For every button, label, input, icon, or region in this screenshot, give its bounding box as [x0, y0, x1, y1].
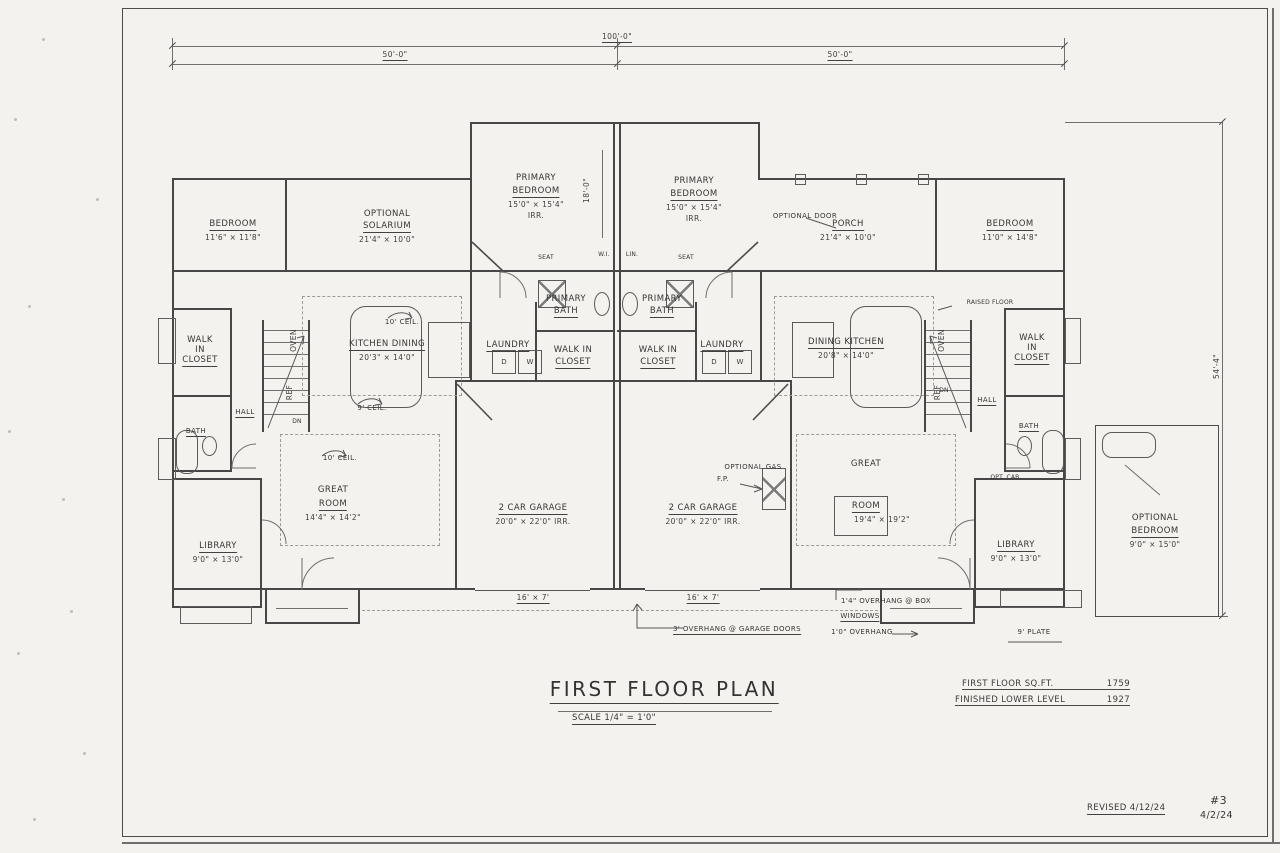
room-label-hall: HALL	[235, 408, 254, 416]
room-name: BEDROOM	[670, 189, 717, 201]
room-label-laundry: LAUNDRY	[486, 341, 529, 351]
sqft-line: FIRST FLOOR SQ.FT. 1759	[962, 679, 1130, 690]
room-name: LAUNDRY	[486, 340, 529, 352]
stair-dn-label: DN	[292, 419, 302, 426]
room-dims-irr: IRR.	[686, 215, 702, 224]
room-name: CLOSET	[555, 357, 590, 369]
room-dims: 9'0" × 15'0"	[1130, 541, 1181, 550]
room-dims-irr: IRR.	[528, 212, 544, 221]
room-name: LIBRARY	[997, 540, 1035, 552]
garage-door-dim: 16' × 7'	[687, 594, 720, 603]
raised-floor-note: RAISED FLOOR	[967, 300, 1014, 307]
room-label-bath: BATH	[186, 427, 206, 435]
revision-note: REVISED 4/12/24	[1087, 804, 1165, 814]
room-dims: 20'8" × 14'0"	[818, 352, 874, 361]
room-name: BATH	[650, 306, 674, 318]
room-label-solarium: OPTIONAL	[364, 210, 410, 220]
dim-text: 16' × 7'	[687, 593, 720, 604]
room-label-bedroom: BEDROOM	[209, 220, 256, 230]
room-label-library: LIBRARY	[997, 541, 1035, 551]
room-dims: 21'4" × 10'0"	[820, 234, 876, 243]
note-text: 3' OVERHANG @ GARAGE DOORS	[673, 625, 801, 635]
room-dims: 14'4" × 14'2"	[305, 514, 361, 523]
lower-label: FINISHED LOWER LEVEL	[955, 695, 1065, 705]
room-name: ROOM	[852, 501, 880, 513]
room-name: BEDROOM	[512, 186, 559, 198]
title-underline	[558, 711, 772, 712]
room-name: BEDROOM	[1131, 526, 1178, 538]
room-label-primary-bath: PRIMARY	[642, 295, 682, 305]
room-dims: 15'0" × 15'4"	[508, 201, 564, 210]
wi-closet-label: W.I.	[598, 252, 610, 259]
room-name: BEDROOM	[209, 219, 256, 231]
room-label-great-room: ROOM	[852, 502, 880, 512]
room-name: DINING KITCHEN	[808, 337, 884, 349]
gas-fp-note: F.P.	[717, 475, 729, 483]
ceiling-note: 10' CEIL.	[323, 454, 357, 462]
room-label-primary-bedroom: BEDROOM	[512, 187, 559, 197]
room-name: LIBRARY	[199, 541, 237, 553]
room-label-walkin-closet: CLOSET	[640, 358, 675, 368]
lower-value: 1927	[1107, 695, 1130, 705]
room-label-great-room: GREAT	[318, 486, 348, 496]
room-name: HALL	[977, 396, 996, 406]
opt-cab-note: OPT. CAB.	[990, 475, 1021, 482]
ceiling-note: 10' CEIL.	[385, 318, 419, 326]
room-label-primary-bath: PRIMARY	[546, 295, 586, 305]
garage-door-dim: 16' × 7'	[517, 594, 550, 603]
room-label-porch: PORCH	[832, 220, 864, 230]
room-label-solarium: SOLARIUM	[363, 222, 411, 232]
sqft-label: FIRST FLOOR SQ.FT.	[962, 679, 1054, 689]
room-label-garage: 2 CAR GARAGE	[499, 504, 568, 514]
drawing-scale: SCALE 1/4" = 1'0"	[572, 714, 656, 724]
revision-text: REVISED 4/12/24	[1087, 803, 1165, 815]
scale-text: SCALE 1/4" = 1'0"	[572, 713, 656, 725]
note-text: WINDOWS	[840, 612, 879, 622]
room-label-great-room: GREAT	[851, 460, 881, 470]
room-name: BATH	[186, 427, 206, 437]
dim-text: 16' × 7'	[517, 593, 550, 604]
ceiling-note: 9' CEIL.	[357, 404, 386, 412]
room-name: LAUNDRY	[700, 340, 743, 352]
room-dims: 21'4" × 10'0"	[359, 236, 415, 245]
oven-label: OVEN	[289, 329, 298, 352]
drawing-title: FIRST FLOOR PLAN	[550, 678, 779, 704]
room-dims: 20'0" × 22'0" IRR.	[665, 518, 740, 527]
seat-label: SEAT	[538, 255, 554, 262]
room-label-kitchen-dining: KITCHEN DINING	[349, 340, 425, 350]
seat-label: SEAT	[678, 255, 694, 262]
room-name: CLOSET	[182, 355, 217, 367]
room-name: BEDROOM	[986, 219, 1033, 231]
angled-walls	[457, 242, 788, 420]
oven-label: OVEN	[937, 329, 946, 352]
room-label-primary-bedroom: PRIMARY	[674, 177, 714, 187]
box-window-note: 1'0" OVERHANG	[831, 628, 893, 636]
room-dims: 20'3" × 14'0"	[359, 354, 415, 363]
sheet-date: 4/2/24	[1200, 811, 1233, 822]
room-label-walkin-closet: WALK IN	[639, 346, 677, 356]
sheet-number: #3	[1210, 795, 1227, 808]
room-name: CLOSET	[1014, 353, 1049, 365]
room-dims: 20'0" × 22'0" IRR.	[495, 518, 570, 527]
room-label-optional-bedroom: OPTIONAL	[1132, 514, 1178, 524]
box-window-note: 1'4" OVERHANG @ BOX	[841, 597, 931, 605]
ref-label: REF	[933, 385, 942, 400]
room-label-dining-kitchen: DINING KITCHEN	[808, 338, 884, 348]
room-label-great-room: ROOM	[319, 500, 347, 510]
ref-label: REF	[285, 385, 294, 400]
room-label-primary-bedroom: BEDROOM	[670, 190, 717, 200]
room-label-primary-bath: BATH	[650, 307, 674, 317]
linen-label: LIN.	[626, 252, 638, 259]
room-label-walkin-closet: CLOSET	[555, 358, 590, 368]
room-dims: 11'6" × 11'8"	[205, 234, 261, 243]
gas-fp-note: OPTIONAL GAS	[724, 463, 781, 471]
garage-overhang-note: 3' OVERHANG @ GARAGE DOORS	[673, 625, 801, 633]
room-label-primary-bedroom: PRIMARY	[516, 174, 556, 184]
room-label-walkin-closet-far: CLOSET	[1014, 354, 1049, 364]
room-name: ROOM	[319, 499, 347, 511]
room-name: KITCHEN DINING	[349, 339, 425, 351]
room-name: PORCH	[832, 219, 864, 231]
room-label-walkin-closet: WALK IN	[554, 346, 592, 356]
blueprint-scan-page: 100'-0" 50'-0" 50'-0" 54'-4" 18'-0"	[0, 0, 1280, 853]
plate-note: 9' PLATE	[1017, 628, 1050, 636]
lower-level-line: FINISHED LOWER LEVEL 1927	[955, 695, 1130, 706]
room-dims: 19'4" × 19'2"	[854, 516, 910, 525]
room-name: 2 CAR GARAGE	[669, 503, 738, 515]
room-name: BATH	[1019, 422, 1039, 432]
room-dims: 15'0" × 15'4"	[666, 204, 722, 213]
room-dims: 9'0" × 13'0"	[193, 556, 244, 565]
room-label-bedroom: BEDROOM	[986, 220, 1033, 230]
room-name: BATH	[554, 306, 578, 318]
room-label-walkin-closet-far: CLOSET	[182, 356, 217, 366]
room-name: HALL	[235, 408, 254, 418]
room-label-library: LIBRARY	[199, 542, 237, 552]
optional-door-note: OPTIONAL DOOR	[773, 212, 837, 220]
room-label-primary-bath: BATH	[554, 307, 578, 317]
room-label-optional-bedroom: BEDROOM	[1131, 527, 1178, 537]
room-label-bath: BATH	[1019, 422, 1039, 430]
room-name: 2 CAR GARAGE	[499, 503, 568, 515]
room-label-hall: HALL	[977, 396, 996, 404]
room-dims: 11'0" × 14'8"	[982, 234, 1038, 243]
room-label-garage: 2 CAR GARAGE	[669, 504, 738, 514]
room-dims: 9'0" × 13'0"	[991, 555, 1042, 564]
room-name: CLOSET	[640, 357, 675, 369]
box-window-note: WINDOWS	[840, 612, 879, 620]
room-label-laundry: LAUNDRY	[700, 341, 743, 351]
sqft-value: 1759	[1107, 679, 1130, 689]
note-arrows	[322, 218, 1062, 642]
room-name: SOLARIUM	[363, 221, 411, 233]
